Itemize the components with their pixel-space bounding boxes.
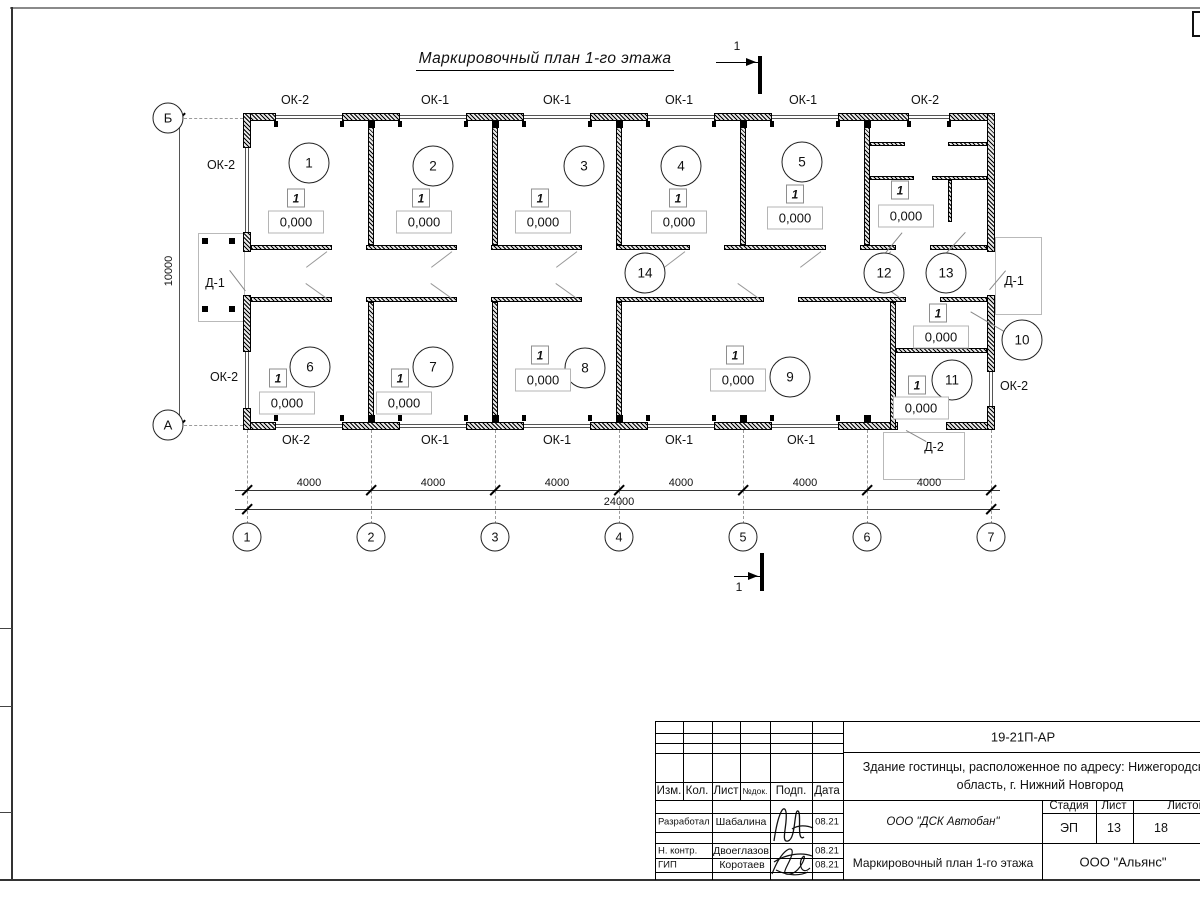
wall-segment (987, 113, 995, 252)
wall-segment (940, 297, 987, 302)
window-jamb (646, 121, 650, 127)
room-number-bubble: 10 (1002, 320, 1043, 361)
wall-segment (932, 176, 987, 180)
wall-segment (342, 113, 400, 121)
window-jamb (464, 415, 468, 421)
grid-axis-bubble: 3 (481, 523, 510, 552)
wall-segment (368, 302, 374, 422)
dimension-label: 4000 (297, 477, 321, 489)
window-jamb (274, 415, 278, 421)
wall-anchor (492, 121, 499, 128)
window-jamb (907, 121, 911, 127)
grid-axis-bubble: 1 (233, 523, 262, 552)
corner-stamp-box (1192, 11, 1200, 37)
wall-segment (491, 245, 582, 250)
wall-anchor (492, 415, 499, 422)
sheets-label: Листов (1167, 800, 1200, 812)
window-jamb (770, 415, 774, 421)
wall-segment (243, 408, 251, 430)
wall-segment (616, 302, 622, 422)
dimension-label: 4000 (793, 477, 817, 489)
door-leader (664, 251, 686, 268)
wall-anchor (368, 121, 375, 128)
window-symbol (524, 424, 590, 428)
window-symbol (276, 115, 342, 119)
wall-segment (714, 422, 772, 430)
titleblock-line (1096, 800, 1097, 843)
wall-segment (366, 297, 457, 302)
window-label: ОК-1 (421, 433, 449, 447)
window-jamb (588, 121, 592, 127)
wall-segment (491, 297, 582, 302)
room-number-bubble: 3 (564, 146, 605, 187)
window-jamb (712, 415, 716, 421)
titleblock-object-line1: Здание гостинцы, расположенное по адресу… (863, 760, 1200, 774)
window-label: ОК-1 (787, 433, 815, 447)
grid-axis-bubble: 4 (605, 523, 634, 552)
window-jamb (398, 121, 402, 127)
section-mark-label: 1 (734, 39, 741, 53)
floor-type-marker: 1 (891, 181, 909, 200)
col-list: Лист (714, 785, 739, 797)
wall-segment (930, 245, 987, 250)
window-symbol (648, 424, 714, 428)
titleblock-line (843, 752, 1200, 753)
wall-segment (948, 142, 987, 146)
grid-axis-bubble: 7 (977, 523, 1006, 552)
elevation-box: 0,000 (259, 392, 315, 415)
floor-type-marker: 1 (908, 376, 926, 395)
window-label: ОК-1 (543, 93, 571, 107)
room-number-bubble: 13 (926, 253, 967, 294)
room-number-bubble: 2 (413, 146, 454, 187)
wall-anchor (740, 121, 747, 128)
leader-line (884, 232, 903, 255)
window-jamb (522, 121, 526, 127)
door-label: Д-1 (205, 276, 225, 290)
window-jamb (522, 415, 526, 421)
window-label: ОК-1 (543, 433, 571, 447)
wall-segment (948, 180, 952, 222)
wall-segment (714, 113, 772, 121)
porch-column (202, 306, 208, 312)
elevation-box: 0,000 (376, 392, 432, 415)
floor-type-marker: 1 (391, 369, 409, 388)
wall-segment (864, 121, 870, 245)
section-mark-bar (760, 553, 764, 591)
wall-anchor (864, 121, 871, 128)
porch-column (229, 306, 235, 312)
titleblock-line (655, 743, 843, 744)
elevation-box: 0,000 (913, 326, 969, 349)
col-data: Дата (814, 785, 839, 797)
titleblock-line (655, 813, 843, 814)
room-number-bubble: 7 (413, 347, 454, 388)
porch-column (229, 238, 235, 244)
wall-segment (243, 295, 251, 352)
elevation-box: 0,000 (893, 397, 949, 420)
dimension-line (179, 118, 180, 425)
wall-segment (590, 422, 648, 430)
row-date: 08.21 (815, 817, 839, 828)
window-symbol (400, 424, 466, 428)
window-symbol (245, 148, 249, 232)
row-role: Разработал (658, 817, 710, 828)
window-jamb (712, 121, 716, 127)
wall-segment (243, 113, 251, 148)
section-mark-bar (758, 56, 762, 94)
wall-segment (243, 232, 251, 252)
titleblock-code: 19-21П-АР (991, 730, 1055, 745)
elevation-box: 0,000 (710, 369, 766, 392)
titleblock-object-line2: область, г. Нижний Новгород (957, 778, 1124, 792)
window-jamb (947, 121, 951, 127)
margin-mark (0, 628, 12, 629)
dimension-line (235, 509, 1000, 510)
wall-anchor (616, 121, 623, 128)
window-label: ОК-1 (421, 93, 449, 107)
frame-left-line (11, 7, 13, 881)
titleblock-line (1133, 800, 1134, 843)
titleblock-doc-title: Маркировочный план 1-го этажа (853, 856, 1034, 870)
wall-segment (838, 113, 909, 121)
floor-type-marker: 1 (531, 189, 549, 208)
grid-axis-bubble: 2 (357, 523, 386, 552)
window-label: ОК-1 (665, 433, 693, 447)
wall-segment (616, 121, 622, 245)
wall-segment (987, 295, 995, 372)
dimension-label: 4000 (917, 477, 941, 489)
titleblock-line (655, 733, 843, 734)
window-jamb (464, 121, 468, 127)
wall-segment (870, 142, 905, 146)
elevation-box: 0,000 (878, 205, 934, 228)
window-symbol (909, 115, 949, 119)
window-label: ОК-1 (789, 93, 817, 107)
wall-segment (870, 176, 914, 180)
wall-segment (492, 302, 498, 422)
dimension-label: 10000 (163, 256, 175, 287)
floor-type-marker: 1 (269, 369, 287, 388)
sheet-value: 13 (1107, 821, 1121, 835)
dimension-label: 4000 (545, 477, 569, 489)
wall-segment (590, 113, 648, 121)
window-label: ОК-2 (281, 93, 309, 107)
door-label: Д-2 (924, 440, 944, 454)
room-number-bubble: 14 (625, 253, 666, 294)
row-axis-bubble: А (153, 410, 184, 441)
door-leader (556, 251, 578, 268)
wall-segment (466, 422, 524, 430)
door-leader (431, 251, 453, 268)
wall-segment (492, 121, 498, 245)
window-jamb (646, 415, 650, 421)
row-axis-bubble: Б (153, 103, 184, 134)
titleblock-line (1042, 813, 1200, 814)
elevation-box: 0,000 (268, 211, 324, 234)
row-name: Коротаев (719, 859, 764, 871)
window-label: ОК-1 (665, 93, 693, 107)
titleblock-line (655, 843, 1200, 844)
window-jamb (836, 415, 840, 421)
wall-segment (616, 297, 764, 302)
wall-segment (251, 245, 332, 250)
col-izm: Изм. (657, 785, 682, 797)
floor-type-marker: 1 (786, 185, 804, 204)
window-symbol (245, 352, 249, 408)
floor-type-marker: 1 (669, 189, 687, 208)
room-number-bubble: 5 (782, 142, 823, 183)
stage-label: Стадия (1049, 800, 1088, 812)
floor-type-marker: 1 (929, 304, 947, 323)
grid-axis-bubble: 6 (853, 523, 882, 552)
window-jamb (398, 415, 402, 421)
window-label: ОК-2 (1000, 379, 1028, 393)
window-jamb (588, 415, 592, 421)
door-leader (306, 251, 328, 268)
frame-top-line (10, 7, 1200, 9)
elevation-box: 0,000 (515, 211, 571, 234)
section-mark-label: 1 (736, 580, 743, 594)
titleblock-line (655, 832, 843, 833)
window-jamb (836, 121, 840, 127)
room-number-bubble: 4 (661, 146, 702, 187)
wall-segment (251, 297, 332, 302)
wall-anchor (616, 415, 623, 422)
elevation-box: 0,000 (651, 211, 707, 234)
titleblock-line (655, 782, 843, 783)
dimension-label: 4000 (669, 477, 693, 489)
wall-segment (896, 348, 987, 353)
room-number-bubble: 1 (289, 143, 330, 184)
wall-segment (466, 113, 524, 121)
row-name: Двоеглазов (713, 845, 769, 857)
wall-segment (987, 406, 995, 430)
row-role: ГИП (658, 860, 677, 871)
drawing-title: Маркировочный план 1-го этажа (385, 50, 705, 68)
window-jamb (340, 415, 344, 421)
door-label: Д-1 (1004, 274, 1024, 288)
wall-segment (724, 245, 826, 250)
window-label: ОК-2 (210, 370, 238, 384)
room-number-bubble: 12 (864, 253, 905, 294)
section-mark-arrow (748, 572, 758, 580)
frame-bottom-line (0, 879, 1200, 881)
row-role: Н. контр. (658, 846, 697, 857)
sheets-value: 18 (1154, 821, 1168, 835)
window-symbol (989, 372, 993, 406)
wall-segment (616, 245, 690, 250)
row-axis-line (184, 425, 243, 426)
wall-segment (838, 422, 898, 430)
window-symbol (772, 424, 838, 428)
floor-type-marker: 1 (287, 189, 305, 208)
row-axis-line (184, 118, 243, 119)
dimension-label: 4000 (421, 477, 445, 489)
margin-mark (0, 706, 12, 707)
floor-type-marker: 1 (726, 346, 744, 365)
elevation-box: 0,000 (767, 207, 823, 230)
room-number-bubble: 9 (770, 357, 811, 398)
window-symbol (400, 115, 466, 119)
sheet-label: Лист (1102, 800, 1127, 812)
floor-type-marker: 1 (412, 189, 430, 208)
window-jamb (274, 121, 278, 127)
window-symbol (648, 115, 714, 119)
drawing-sheet: Маркировочный план 1-го этажа 19-21П-АР … (0, 0, 1200, 900)
titleblock-line (1042, 800, 1043, 880)
elevation-box: 0,000 (396, 211, 452, 234)
col-podp: Подп. (776, 785, 807, 797)
window-label: ОК-2 (207, 158, 235, 172)
wall-anchor (864, 415, 871, 422)
wall-segment (740, 121, 746, 245)
window-symbol (524, 115, 590, 119)
wall-segment (342, 422, 400, 430)
col-ndok: №док. (743, 786, 768, 796)
section-mark-arrow (746, 58, 756, 66)
grid-axis-bubble: 5 (729, 523, 758, 552)
stage-value: ЭП (1060, 821, 1078, 835)
wall-segment (366, 245, 457, 250)
row-name: Шабалина (716, 816, 767, 828)
elevation-box: 0,000 (515, 369, 571, 392)
titleblock-line (655, 872, 843, 873)
row-date: 08.21 (815, 846, 839, 857)
room-number-bubble: 11 (932, 360, 973, 401)
margin-mark (0, 812, 12, 813)
porch-column (202, 238, 208, 244)
titleblock-line (655, 858, 843, 859)
window-symbol (772, 115, 838, 119)
wall-segment (368, 121, 374, 245)
titleblock-org: ООО "ДСК Автобан" (886, 816, 999, 828)
wall-anchor (368, 415, 375, 422)
window-jamb (340, 121, 344, 127)
titleblock-line (655, 800, 1200, 801)
window-jamb (770, 121, 774, 127)
door-leader (800, 251, 822, 268)
wall-anchor (740, 415, 747, 422)
window-symbol (276, 424, 342, 428)
window-label: ОК-2 (282, 433, 310, 447)
floor-type-marker: 1 (531, 346, 549, 365)
signature-scribble (768, 840, 814, 880)
titleblock-line (655, 721, 1200, 722)
col-kol: Кол. (686, 785, 709, 797)
titleblock-company: ООО "Альянс" (1080, 855, 1167, 870)
titleblock-line (655, 753, 843, 754)
window-label: ОК-2 (911, 93, 939, 107)
dimension-label: 24000 (604, 496, 635, 508)
row-date: 08.21 (815, 860, 839, 871)
room-number-bubble: 6 (290, 347, 331, 388)
